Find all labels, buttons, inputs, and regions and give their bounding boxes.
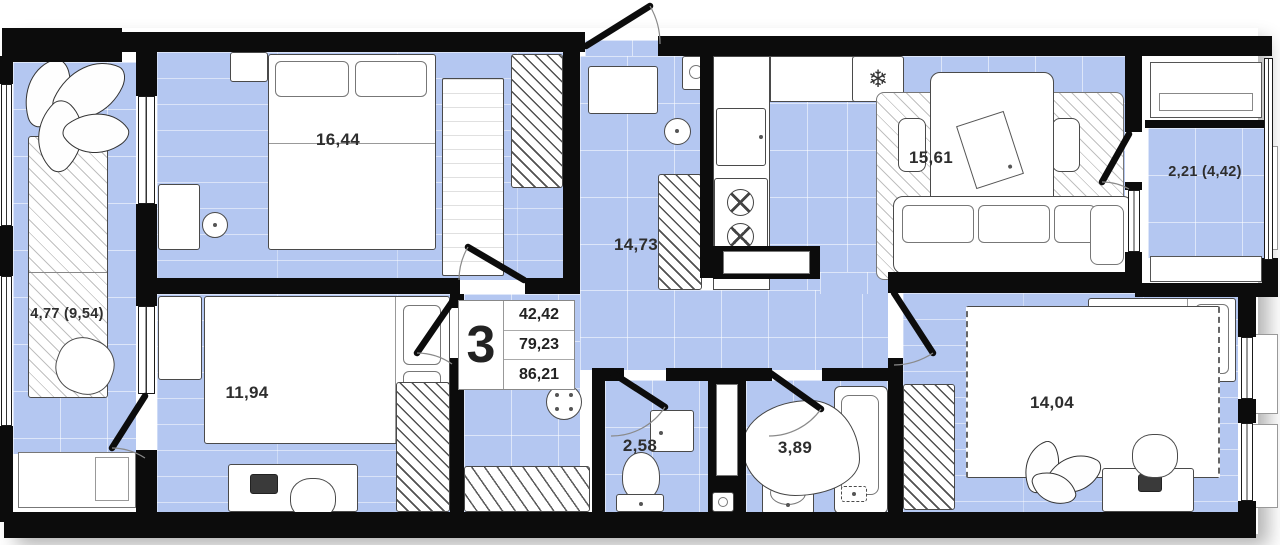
room-area-label: 2,21 (4,42) <box>1168 164 1241 180</box>
rooms-count: 3 <box>459 301 504 389</box>
bedroom2-door-arc <box>417 353 452 364</box>
room-area-label: 14,73 <box>614 235 658 255</box>
floor-plan: ❄ <box>0 0 1280 545</box>
living-area-value: 42,42 <box>504 301 574 331</box>
apartment-area-value: 79,23 <box>504 331 574 361</box>
balcony-right-door-arc <box>1102 182 1129 189</box>
door-layer <box>0 0 1280 545</box>
bathroom-door-leaf <box>769 372 821 409</box>
entrance-door-leaf <box>586 6 650 46</box>
bedroom2-door-leaf <box>417 302 452 353</box>
bedroom1-door-arc <box>459 247 468 280</box>
room-area-label: 3,89 <box>778 438 812 458</box>
room-area-label: 15,61 <box>909 148 953 168</box>
room-area-label: 2,58 <box>623 436 657 456</box>
bathroom-door-arc <box>769 409 821 436</box>
balcony-right-door-leaf <box>1102 134 1129 182</box>
apartment-info-box: 3 42,42 79,23 86,21 <box>458 300 575 390</box>
wc-door-leaf <box>611 372 665 407</box>
room-area-label: 16,44 <box>316 130 360 150</box>
loggia-door-leaf <box>112 396 145 448</box>
wc-door-arc <box>611 407 665 436</box>
entrance-door-arc <box>650 6 660 44</box>
total-area-value: 86,21 <box>504 360 574 389</box>
loggia-door-arc <box>112 448 145 458</box>
bedroom3-door-arc <box>894 353 933 365</box>
room-area-label: 14,04 <box>1030 393 1074 413</box>
bedroom3-door-leaf <box>894 293 933 353</box>
room-area-label: 4,77 (9,54) <box>30 306 103 322</box>
room-area-label: 11,94 <box>225 383 268 403</box>
bedroom1-door-leaf <box>468 247 524 280</box>
